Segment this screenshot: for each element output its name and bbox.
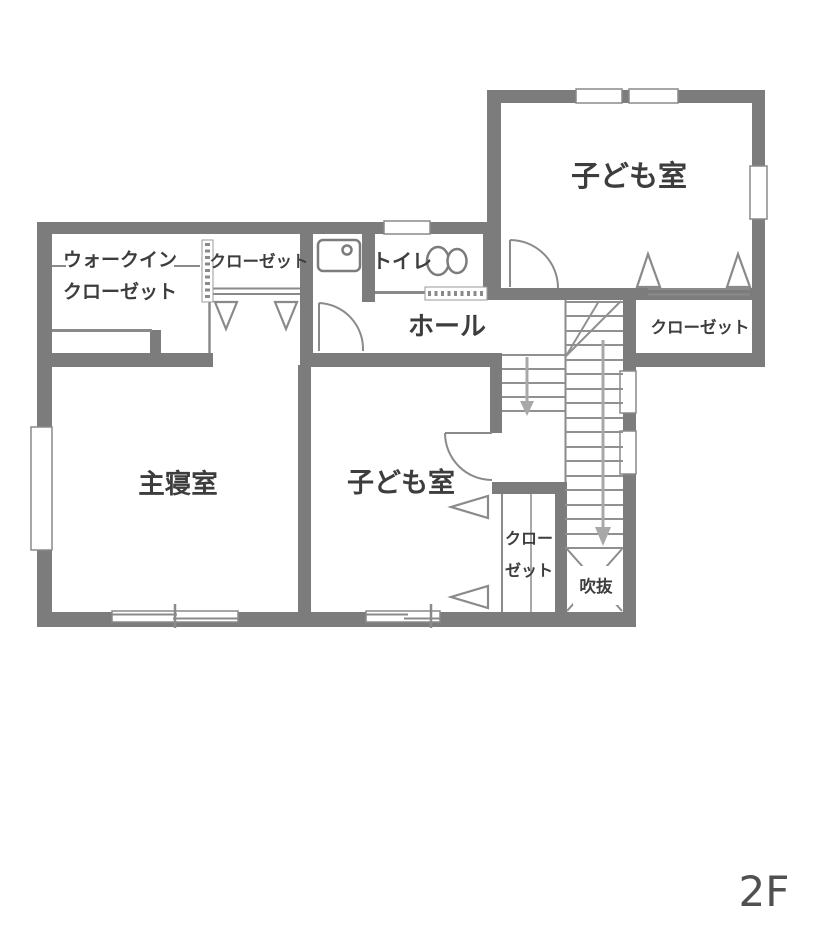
partition-lines — [52, 266, 750, 612]
window-stairwell-east-1 — [620, 371, 636, 413]
label-wic-line2: クローゼット — [63, 280, 177, 303]
label-closet-upper: クローゼット — [210, 251, 309, 271]
door-child-room-1 — [510, 240, 558, 288]
wall-outer-left — [37, 222, 52, 627]
wall-landing-west — [490, 362, 502, 433]
bifold-closet-child1-right — [727, 254, 750, 287]
window-child1-right — [750, 166, 767, 219]
wall-wic-bottom — [37, 353, 213, 367]
wall-top-left-section — [37, 222, 501, 234]
door-wic-louver — [202, 240, 213, 302]
label-child-room-2: 子ども室 — [347, 467, 455, 499]
window-child1-top-1 — [576, 89, 622, 103]
label-closet-child2-line2: ゼット — [505, 561, 553, 580]
toilet-icon — [427, 247, 467, 275]
stair-arrow-upper — [520, 357, 534, 416]
wic-counter-post — [150, 330, 161, 354]
label-void: 吹抜 — [580, 576, 614, 596]
label-closet-child2-line1: クロー — [505, 529, 553, 548]
floor-plan-page: 子ども室 ウォークイン クローゼット クローゼット トイレ ホール クローゼット… — [0, 0, 838, 940]
window-bedroom-left — [31, 427, 52, 550]
stair-upper-run — [502, 355, 565, 411]
window-stairwell-east-2 — [620, 431, 636, 474]
label-toilet: トイレ — [372, 249, 432, 273]
label-closet-child1: クローゼット — [651, 317, 750, 337]
wall-hall-bottom — [300, 353, 502, 367]
bifold-closet-child1-left — [637, 254, 660, 287]
wall-child-room-1-right — [752, 90, 765, 367]
bifold-closet-child2-bottom — [451, 586, 488, 608]
bifold-closet-child2-top — [451, 496, 488, 518]
door-wash-nook — [319, 303, 363, 351]
room-labels: 子ども室 ウォークイン クローゼット クローゼット トイレ ホール クローゼット… — [63, 159, 789, 916]
stair-arrow-main — [595, 340, 611, 546]
label-floor-2f: 2F — [739, 867, 790, 916]
label-wic-line1: ウォークイン — [63, 249, 177, 271]
wall-toilet-right — [483, 233, 501, 293]
bifold-closet1-left — [215, 302, 237, 329]
wall-closet-child1-bottom — [623, 353, 765, 367]
door-toilet-louver — [425, 287, 487, 300]
wall-bedroom-child2 — [298, 365, 311, 612]
wash-basin-icon — [318, 240, 360, 271]
stair-main-run — [565, 302, 623, 548]
label-master-bedroom: 主寝室 — [138, 469, 218, 500]
window-child1-top-2 — [629, 89, 678, 103]
bifold-door-symbols — [215, 254, 750, 608]
label-hall: ホール — [408, 312, 486, 342]
window-toilet-top — [384, 221, 430, 234]
bifold-closet1-right — [275, 302, 297, 329]
wall-child-room-1-top — [490, 90, 765, 103]
floor-plan-drawing: 子ども室 ウォークイン クローゼット クローゼット トイレ ホール クローゼット… — [0, 0, 838, 940]
label-child-room-1: 子ども室 — [571, 159, 687, 193]
